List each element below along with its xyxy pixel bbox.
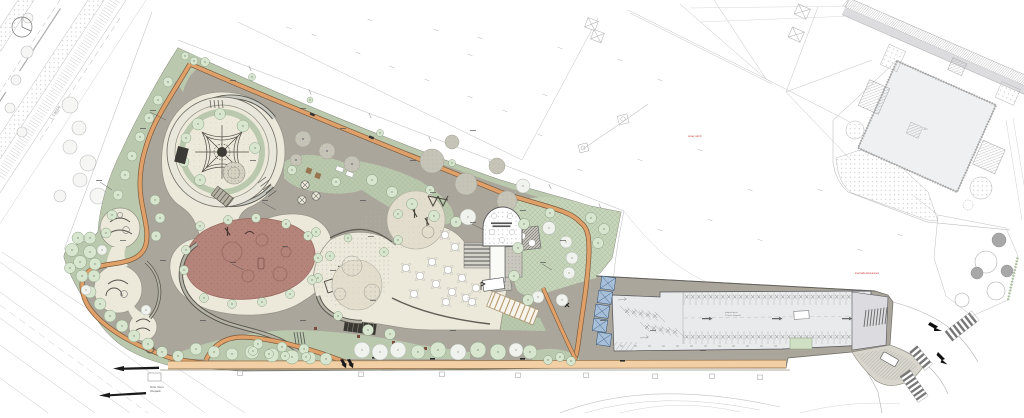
svg-text:imar hatti duzenlemesi: imar hatti duzenlemesi [855, 272, 879, 275]
svg-text:1h: 1h [923, 126, 927, 131]
svg-text:Otopark: Otopark [150, 389, 161, 393]
svg-text:onay siniri: onay siniri [688, 134, 702, 138]
svg-text:otopark girisi: otopark girisi [725, 311, 738, 314]
svg-text:24 arac otoparki: 24 arac otoparki [725, 314, 741, 317]
